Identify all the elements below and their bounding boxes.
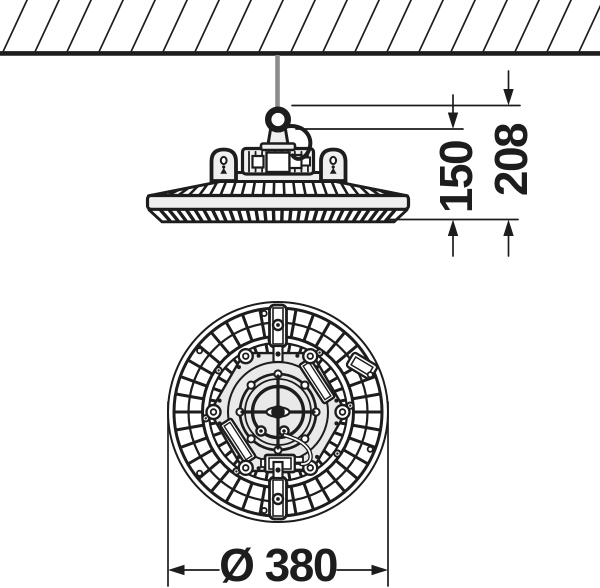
- dimension-label-150: 150: [430, 141, 482, 213]
- bracket-body: [212, 150, 237, 182]
- arrow-208-bottom: [503, 220, 513, 237]
- arrow-diameter-left: [168, 565, 185, 575]
- eye-hook-ring: [268, 110, 288, 130]
- bracket-hole: [221, 157, 227, 164]
- arrow-150-bottom: [448, 220, 458, 237]
- top-view: [168, 302, 388, 522]
- dimension-label-208: 208: [485, 123, 537, 196]
- arrow-208-top: [503, 89, 513, 106]
- hub-center-dot: [271, 405, 285, 419]
- dimension-label-diameter: Ø 380: [219, 539, 337, 588]
- central-hub: [236, 370, 319, 453]
- driver-box-cover: [267, 153, 290, 173]
- mounting-bracket-left: [212, 150, 237, 182]
- heatsink-bottom-fins: [161, 211, 395, 221]
- technical-drawing: 150 208 Ø 380: [0, 0, 600, 588]
- heatsink-band: [148, 196, 409, 210]
- arrow-150-top: [448, 113, 458, 130]
- eye-hook-base: [261, 144, 295, 151]
- ceiling-hatch: [0, 0, 600, 54]
- luminaire-dimension-drawing: 150 208 Ø 380: [0, 0, 600, 588]
- bracket-hole: [330, 157, 336, 164]
- bracket-body: [321, 150, 346, 182]
- arrow-diameter-right: [372, 565, 389, 575]
- cable-gland-left: [253, 156, 264, 168]
- mounting-bracket-right: [321, 150, 346, 182]
